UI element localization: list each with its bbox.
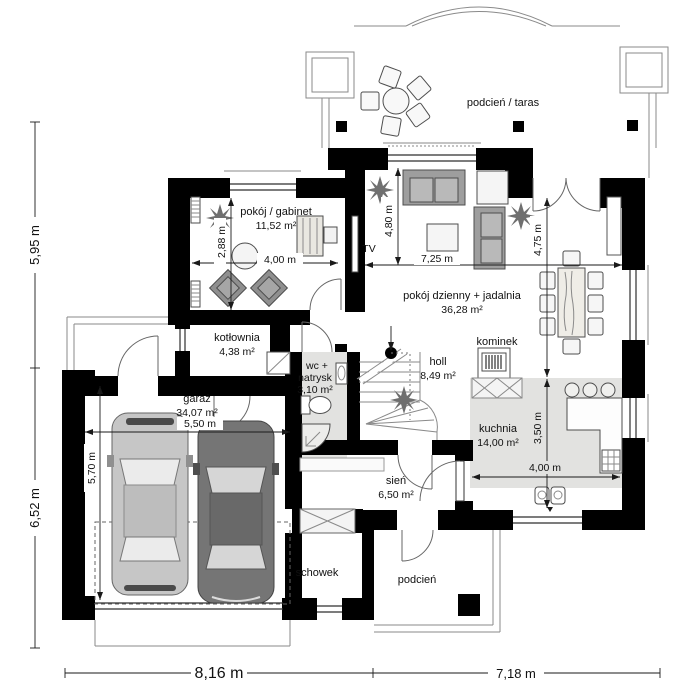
living-terrace-window	[383, 143, 481, 168]
wc-label-2: natrysk	[298, 372, 333, 384]
coffee-table	[427, 224, 458, 251]
desk-chair	[324, 227, 337, 243]
kitchen-sink	[535, 487, 565, 512]
boiler-label: kotłownia	[214, 332, 261, 344]
vestibule-area: 6,50 m²	[378, 489, 414, 501]
chair	[588, 318, 603, 335]
dim-garage-height: 5,70 m	[86, 452, 98, 484]
chair	[588, 272, 603, 289]
terrace-furniture	[361, 65, 432, 136]
porch-label: podcień	[398, 574, 437, 586]
dim-living-height: 4,80 m	[383, 205, 395, 237]
living-area: 36,28 m²	[441, 304, 483, 316]
floor-plan-canvas: podcień / taras pokój / gabinet 11,52 m²…	[0, 0, 700, 700]
round-table	[232, 243, 258, 269]
chair	[563, 339, 580, 354]
patio-table	[383, 88, 409, 114]
hearth	[472, 378, 522, 398]
tv-unit	[352, 216, 358, 272]
kitchen-area: 14,00 m²	[477, 437, 519, 449]
wc-area: 3,10 m²	[297, 384, 333, 396]
dim-total-left-top: 5,95 m	[27, 225, 42, 265]
office-area: 11,52 m²	[256, 220, 297, 232]
staircase	[357, 326, 437, 440]
dim-living-width: 7,25 m	[421, 253, 453, 265]
entry-door	[420, 461, 464, 501]
boiler-area: 4,38 m²	[219, 346, 255, 358]
kitchen-label: kuchnia	[479, 423, 518, 435]
fireplace-label: kominek	[477, 336, 518, 348]
vestibule-label: sień	[386, 475, 406, 487]
dim-total-bottom-left: 8,16 m	[195, 665, 244, 682]
storage-label: schowek	[296, 567, 339, 579]
chair	[540, 295, 555, 312]
garage-label: garaż	[183, 393, 211, 405]
closet-niche	[300, 458, 384, 471]
tv-label: TV	[362, 243, 375, 255]
dim-total-bottom-right: 7,18 m	[496, 666, 536, 681]
dining-window	[624, 270, 643, 340]
vestibule-porch-door	[402, 530, 433, 561]
chair	[588, 295, 603, 312]
terrace-label: podcień / taras	[467, 97, 540, 109]
dim-dining-height: 4,75 m	[532, 224, 544, 256]
chair	[540, 272, 555, 289]
car-dark	[193, 421, 279, 603]
dim-office-height: 2,88 m	[216, 226, 228, 258]
dim-total-left-bottom: 6,52 m	[27, 488, 42, 528]
dim-garage-width: 5,50 m	[184, 418, 216, 430]
dim-office-width: 4,00 m	[264, 254, 296, 266]
stove	[602, 450, 620, 471]
side-table	[477, 171, 508, 204]
kitchen-sink-window	[513, 512, 582, 528]
boiler-room-fittings	[267, 352, 290, 374]
office-label: pokój / gabinet	[240, 206, 312, 218]
garage-side-door	[118, 336, 158, 376]
hall-label: holl	[429, 356, 446, 368]
car-light	[107, 413, 193, 595]
office-window	[224, 171, 301, 196]
dining-furniture	[540, 251, 603, 354]
chair	[540, 318, 555, 335]
boiler-window	[176, 329, 189, 351]
wc-door	[302, 322, 332, 352]
dim-kitchen-height: 3,50 m	[532, 412, 544, 444]
plant	[390, 386, 418, 414]
garage-contents	[95, 413, 290, 604]
fireplace	[472, 348, 522, 398]
dim-kitchen-width: 4,00 m	[529, 462, 561, 474]
office-door	[310, 279, 341, 310]
chair	[563, 251, 580, 266]
kitchen-side-window	[624, 398, 643, 438]
armchair	[251, 270, 288, 307]
armchair	[210, 270, 247, 307]
wc-label-1: wc +	[305, 360, 328, 372]
door-panel	[607, 197, 621, 255]
storage-window	[317, 600, 342, 618]
hall-area: 8,49 m²	[420, 370, 456, 382]
living-label: pokój dzienny + jadalnia	[403, 290, 522, 302]
toilet	[309, 397, 331, 414]
